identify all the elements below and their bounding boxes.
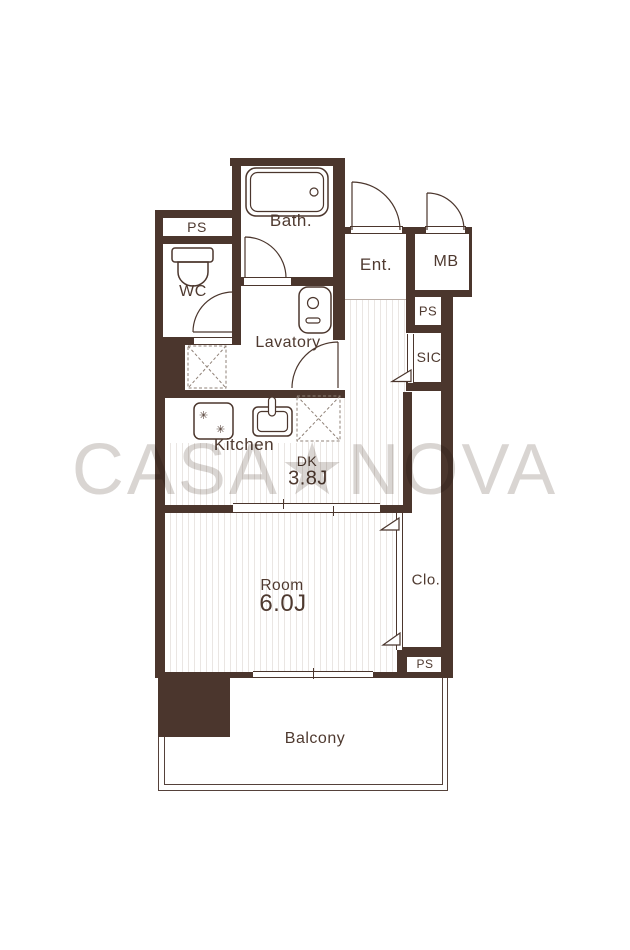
room-label-bath: Bath. — [270, 211, 312, 231]
entrance-step-line — [345, 299, 406, 300]
entrance-door-swing — [352, 182, 400, 230]
wall-segment — [232, 166, 241, 345]
wc-door-opening — [193, 337, 233, 345]
window-tick — [313, 668, 315, 679]
room-label-ps-top: PS — [187, 219, 207, 235]
wall-segment — [397, 647, 453, 657]
closet-folding-door — [396, 513, 403, 650]
room-label-closet: Clo. — [412, 572, 441, 589]
sic-folding-door — [407, 334, 414, 383]
wash-basin-icon — [299, 287, 331, 333]
room-label-ps-right: PS — [419, 304, 437, 319]
wall-segment — [406, 233, 415, 333]
corridor-floor — [345, 300, 406, 398]
wall-segment — [165, 390, 345, 398]
entrance-door-opening — [350, 226, 403, 234]
bath-door-swing — [245, 237, 286, 278]
room-label-ps-bottom: PS — [416, 657, 433, 671]
wall-segment — [163, 236, 232, 244]
wall-segment — [155, 218, 163, 345]
bathtub-icon — [246, 168, 328, 216]
floor-plan: ✳ ✳ Bath. PS WC Ent. MB PS SIC Lavatory … — [0, 0, 630, 950]
wall-mass-balcony — [158, 672, 230, 737]
wall-segment — [406, 382, 441, 391]
wall-segment — [415, 325, 441, 333]
wall-segment — [155, 210, 241, 218]
room-label-balcony: Balcony — [285, 730, 345, 748]
wall-segment — [230, 158, 341, 166]
wall-segment — [333, 158, 345, 340]
lavatory-door-opening — [333, 342, 345, 388]
wall-segment — [397, 657, 407, 672]
room-label-mb: MB — [434, 253, 459, 271]
brand-watermark: CASA★NOVA — [0, 414, 630, 526]
wall-segment — [469, 233, 472, 290]
room-size-main: 6.0J — [259, 590, 306, 618]
mb-door-opening — [425, 226, 466, 234]
room-label-ent: Ent. — [360, 255, 392, 275]
wall-segment — [373, 672, 453, 678]
wall-segment — [406, 290, 472, 297]
room-label-lavatory: Lavatory — [255, 334, 320, 352]
washer-space-icon — [188, 346, 226, 388]
toilet-icon — [172, 248, 213, 286]
mb-door-swing — [427, 193, 464, 230]
room-label-sic: SIC — [417, 349, 442, 365]
room-label-wc: WC — [179, 283, 207, 301]
bath-door-opening — [243, 277, 292, 286]
